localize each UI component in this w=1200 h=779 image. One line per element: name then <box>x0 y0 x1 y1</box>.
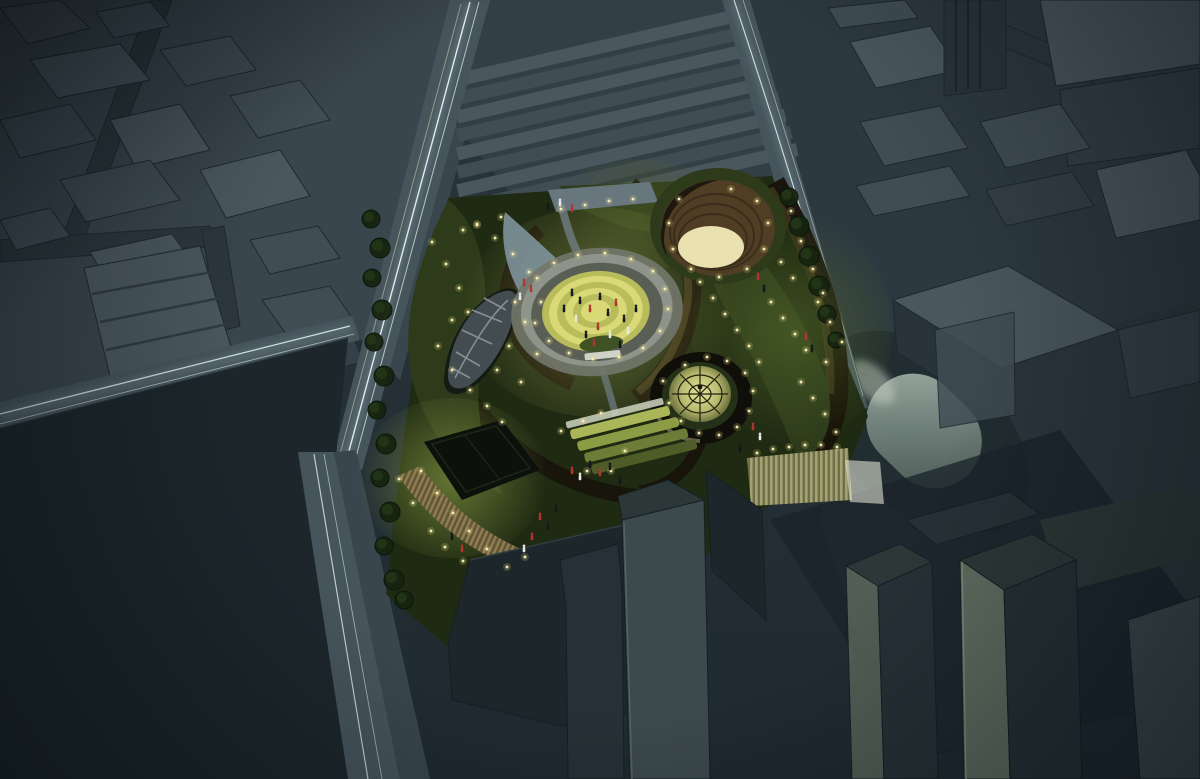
night-city-scene <box>0 0 1200 779</box>
corner-shading <box>0 0 1200 779</box>
architectural-night-rendering <box>0 0 1200 779</box>
